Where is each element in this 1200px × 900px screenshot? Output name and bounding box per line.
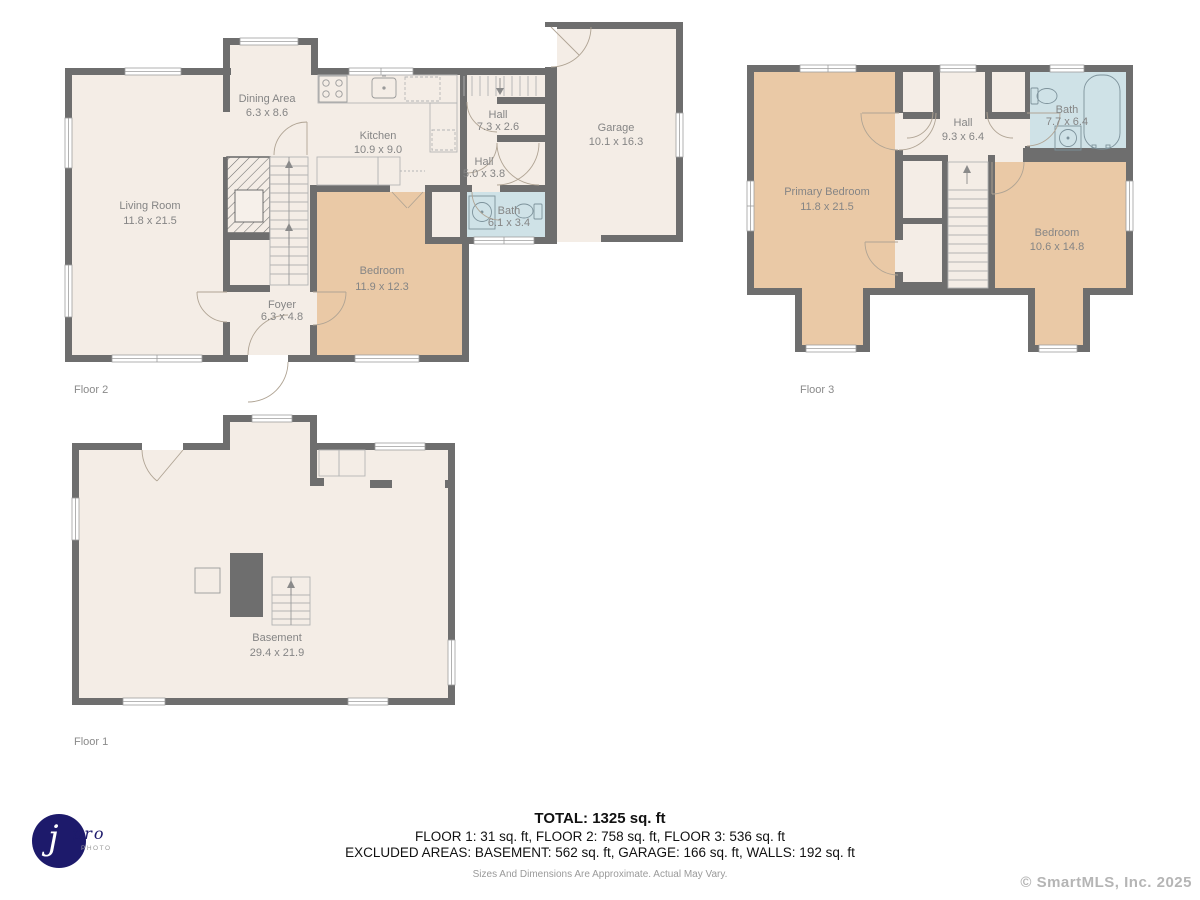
dining-name: Dining Area <box>239 93 297 105</box>
logo-photo: PHOTO <box>81 845 112 852</box>
bedroom3-fill <box>995 162 1126 345</box>
hall3-dims: 9.3 x 6.4 <box>942 131 984 143</box>
garage-dims: 10.1 x 16.3 <box>589 136 643 148</box>
basement-dims: 29.4 x 21.9 <box>250 647 304 659</box>
kitchen-dims: 10.9 x 9.0 <box>354 144 402 156</box>
hall-upper-dims: 7.3 x 2.6 <box>477 121 519 133</box>
foyer-dims: 6.3 x 4.8 <box>261 311 303 323</box>
stairs3-icon <box>948 162 988 288</box>
front-door-opening <box>248 355 288 362</box>
basement-name: Basement <box>252 632 302 644</box>
floor3-label: Floor 3 <box>800 384 834 396</box>
bedroom3-name: Bedroom <box>1035 227 1080 239</box>
garage-door-opening <box>545 27 557 67</box>
floor3-plan: Primary Bedroom 11.8 x 21.5 Hall 9.3 x 6… <box>740 50 1160 370</box>
kitchen-name: Kitchen <box>360 130 397 142</box>
copyright-watermark: © SmartMLS, Inc. 2025 <box>1020 874 1192 891</box>
chimney-hatch <box>227 157 270 233</box>
garage-name: Garage <box>598 122 635 134</box>
floor2-label: Floor 2 <box>74 384 108 396</box>
floor1-footprint <box>72 415 455 705</box>
bedroom2-dims: 11.9 x 12.3 <box>355 281 409 293</box>
floor1-label: Floor 1 <box>74 736 108 748</box>
bath2-dims: 6.1 x 3.4 <box>488 217 530 229</box>
foyer-name: Foyer <box>268 299 296 311</box>
floor-areas: FLOOR 1: 31 sq. ft, FLOOR 2: 758 sq. ft,… <box>0 829 1200 844</box>
excluded-areas: EXCLUDED AREAS: BASEMENT: 562 sq. ft, GA… <box>0 845 1200 860</box>
bath2-name: Bath <box>498 205 521 217</box>
floor1-plan: Basement 29.4 x 21.9 <box>60 405 480 765</box>
bedroom3-dims: 10.6 x 14.8 <box>1030 241 1084 253</box>
hall-lower-name: Hall <box>475 156 494 168</box>
stairs-icon <box>270 157 308 285</box>
stove-icon <box>319 76 347 102</box>
floorplan-page: Living Room 11.8 x 21.5 Dining Area 6.3 … <box>0 0 1200 900</box>
logo-j: j <box>48 818 59 858</box>
basement-door-opening <box>142 443 183 450</box>
hall3-name: Hall <box>954 117 973 129</box>
dining-dims: 6.3 x 8.6 <box>246 107 288 119</box>
total-area: TOTAL: 1325 sq. ft <box>0 810 1200 827</box>
primary-name: Primary Bedroom <box>784 186 870 198</box>
floor2-plan: Living Room 11.8 x 21.5 Dining Area 6.3 … <box>60 10 700 405</box>
area-summary: TOTAL: 1325 sq. ft FLOOR 1: 31 sq. ft, F… <box>0 810 1200 880</box>
primary-dims: 11.8 x 21.5 <box>800 201 854 213</box>
bedroom2-name: Bedroom <box>360 265 405 277</box>
living-room-name: Living Room <box>119 200 180 212</box>
hall-upper-name: Hall <box>489 109 508 121</box>
chimney-block <box>230 553 263 617</box>
hall-lower-dims: 5.0 x 3.8 <box>463 168 505 180</box>
bath3-dims: 7.7 x 6.4 <box>1046 116 1088 128</box>
logo-pro: pro <box>72 824 106 843</box>
living-room-dims: 11.8 x 21.5 <box>123 215 177 227</box>
bath3-name: Bath <box>1056 104 1079 116</box>
jpro-photo-logo: j pro PHOTO <box>32 812 152 872</box>
